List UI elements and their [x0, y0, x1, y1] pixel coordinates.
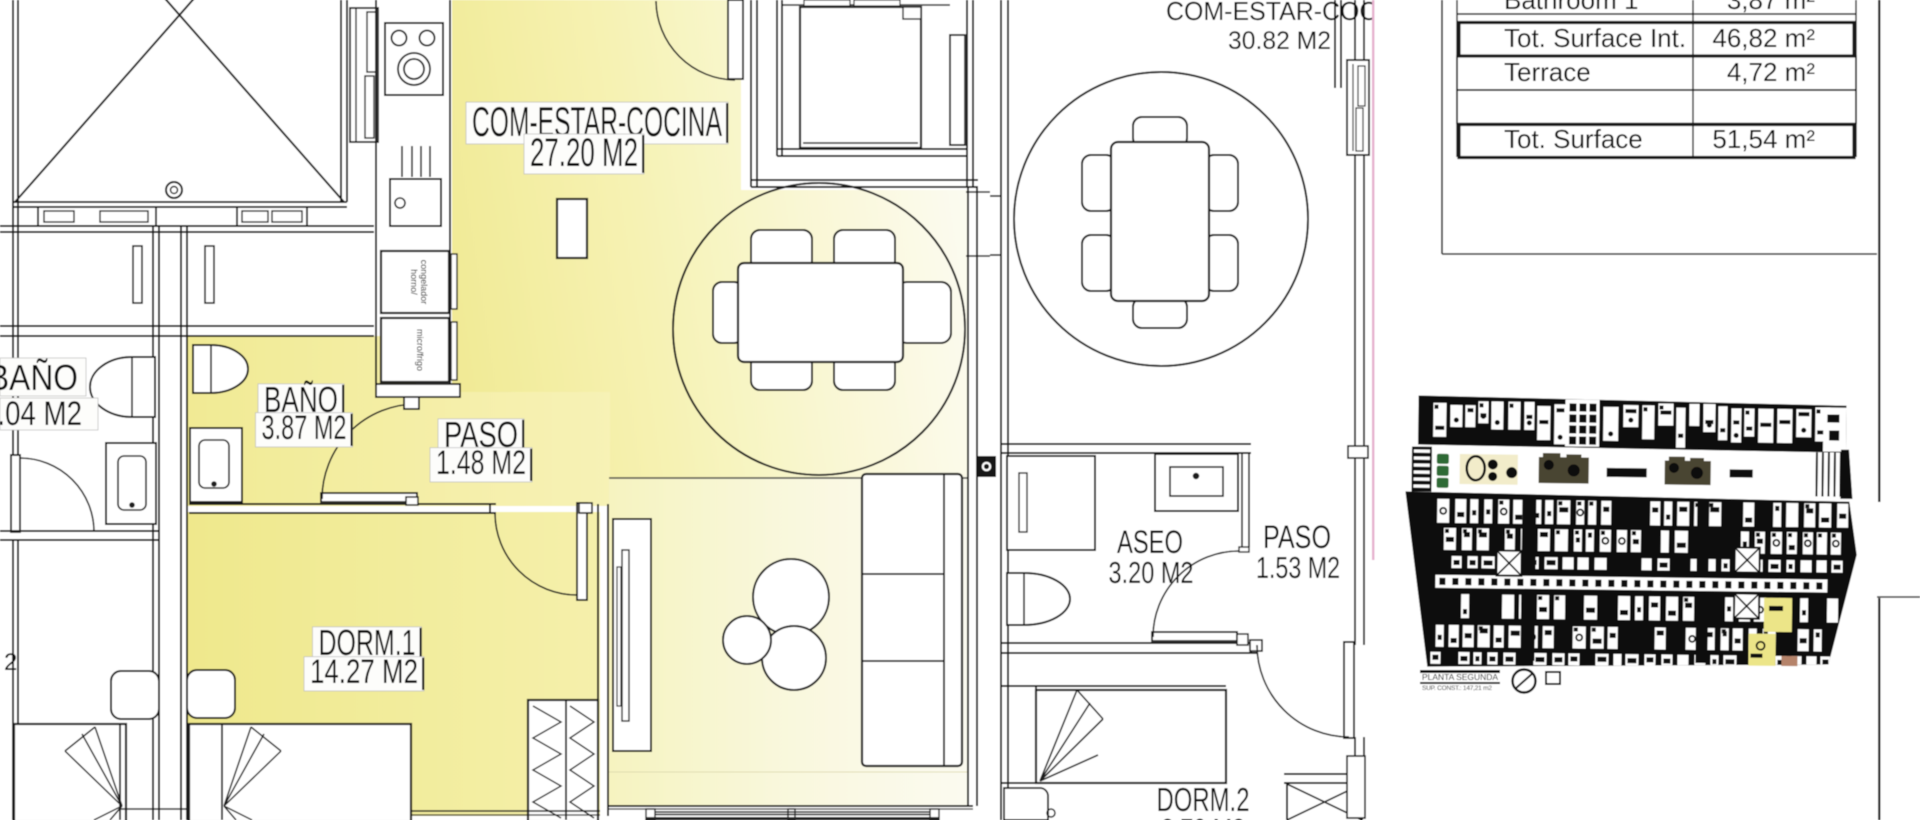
svg-text:Tot. Surface: Tot. Surface: [1504, 124, 1643, 154]
svg-text:horno/: horno/: [409, 269, 419, 295]
svg-text:4.04 M2: 4.04 M2: [0, 395, 82, 433]
svg-text:1.48 M2: 1.48 M2: [436, 444, 526, 482]
svg-text:30.82 M2: 30.82 M2: [1228, 27, 1331, 55]
svg-text:1.53 M2: 1.53 M2: [1256, 550, 1340, 585]
svg-text:Bathroom 1: Bathroom 1: [1504, 0, 1638, 15]
svg-text:PLANTA SEGUNDA: PLANTA SEGUNDA: [1422, 672, 1498, 682]
svg-text:BAÑO: BAÑO: [0, 357, 78, 398]
svg-text:2.70 M2: 2.70 M2: [1161, 812, 1245, 820]
svg-text:3.20 M2: 3.20 M2: [1109, 555, 1194, 590]
svg-text:2: 2: [4, 649, 17, 676]
svg-text:congelador: congelador: [419, 260, 429, 305]
svg-text:3,87 m²: 3,87 m²: [1727, 0, 1815, 15]
svg-text:SUP. CONST.: 147,21 m2: SUP. CONST.: 147,21 m2: [1422, 685, 1492, 692]
svg-text:micro/frigo: micro/frigo: [415, 329, 425, 371]
svg-text:14.27 M2: 14.27 M2: [310, 653, 418, 691]
svg-text:Terrace: Terrace: [1504, 57, 1591, 87]
svg-text:46,82 m²: 46,82 m²: [1712, 23, 1815, 53]
svg-text:3.87 M2: 3.87 M2: [262, 409, 347, 447]
svg-text:27.20 M2: 27.20 M2: [530, 131, 638, 175]
svg-text:51,54 m²: 51,54 m²: [1712, 124, 1815, 154]
svg-text:Tot. Surface Int.: Tot. Surface Int.: [1504, 23, 1686, 53]
svg-text:4,72 m²: 4,72 m²: [1727, 57, 1815, 87]
